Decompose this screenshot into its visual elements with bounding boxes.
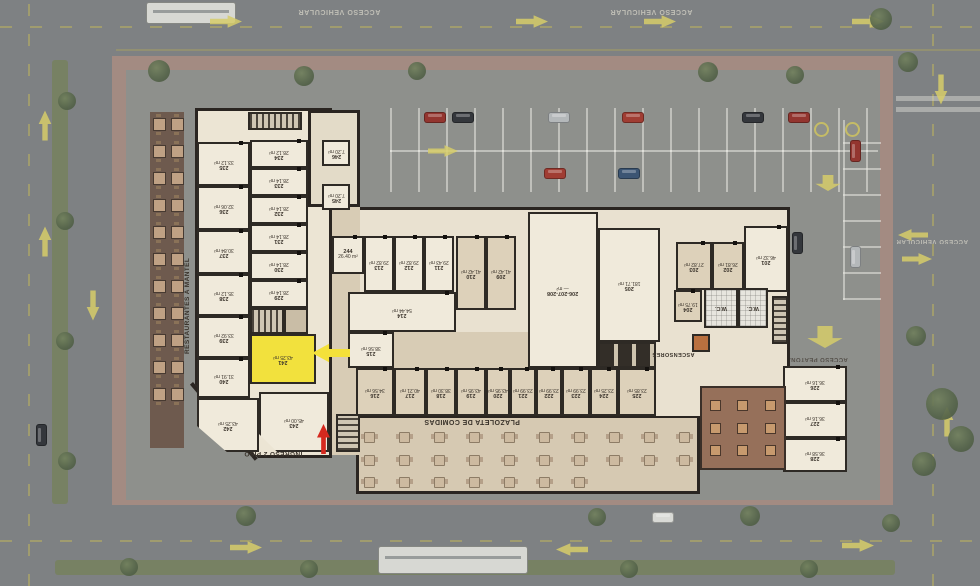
tree <box>800 560 818 578</box>
tree <box>898 52 918 72</box>
unit-227[interactable]: 22736.16 m² <box>783 402 847 438</box>
car <box>544 168 566 179</box>
food-court-table <box>539 455 550 466</box>
car <box>618 168 640 179</box>
unit-228[interactable]: 22836.58 m² <box>783 438 847 472</box>
deck-table <box>710 400 721 411</box>
site-plan: ACCESO VEHICULAR ACCESO VEHICULAR ACCESO… <box>0 0 980 586</box>
tree <box>58 92 76 110</box>
food-court-label: PLAZOLETA DE COMIDAS <box>424 418 520 425</box>
parking-sign-icon <box>845 122 860 137</box>
food-court-table <box>399 455 410 466</box>
unit-label: 205181.71 m² <box>618 279 641 291</box>
unit-221[interactable]: 22123.99 m² <box>510 368 536 416</box>
unit-label: 20419.75 m² <box>678 300 698 312</box>
restaurant-table <box>171 199 184 212</box>
restaurant-tables <box>150 112 185 407</box>
unit-223[interactable]: 22323.99 m² <box>562 368 590 416</box>
restaurant-table <box>171 334 184 347</box>
unit-236[interactable]: 23632.06 m² <box>197 186 250 230</box>
food-court-table <box>399 477 410 488</box>
unit-label: 21838.30 m² <box>431 386 451 398</box>
pedestrian-access-label: ACCESO PEATONAL <box>782 356 848 362</box>
unit-216[interactable]: 21634.56 m² <box>356 368 394 416</box>
unit-219[interactable]: 21943.95 m² <box>456 368 486 416</box>
restaurant-table <box>171 145 184 158</box>
unit-label: 23228.14 m² <box>269 204 289 216</box>
bus <box>378 546 528 574</box>
tree <box>906 326 926 346</box>
tree <box>926 388 958 420</box>
car <box>652 512 674 523</box>
unit-label: 21229.82 m² <box>399 258 419 270</box>
unit-241-highlighted[interactable]: 24143.25 m² <box>250 334 316 384</box>
unit-246[interactable]: 2467.20 m² <box>322 140 350 166</box>
deck-table <box>710 423 721 434</box>
restaurant-table <box>171 361 184 374</box>
tree <box>236 506 256 526</box>
unit-233[interactable]: 23328.14 m² <box>250 168 308 196</box>
unit-239[interactable]: 23933.92 m² <box>197 316 250 358</box>
unit-label: 23933.92 m² <box>214 331 234 343</box>
food-court-table <box>679 455 690 466</box>
unit-237[interactable]: 23730.84 m² <box>197 230 250 274</box>
unit-label: 22928.14 m² <box>269 288 289 300</box>
lane-divider <box>932 0 934 586</box>
road-right <box>893 0 980 586</box>
restaurant-table <box>153 388 166 401</box>
unit-225[interactable]: 22523.85 m² <box>618 368 656 416</box>
lane-divider <box>0 26 980 28</box>
tree <box>948 426 974 452</box>
food-court-table <box>434 455 445 466</box>
wc-room[interactable]: W.C. <box>704 288 738 328</box>
tree <box>408 62 426 80</box>
tree <box>56 212 74 230</box>
unit-213[interactable]: 21329.82 m² <box>364 236 394 292</box>
restaurant-table <box>153 334 166 347</box>
car <box>548 112 570 123</box>
unit-label: 23328.14 m² <box>269 176 289 188</box>
restaurant-table <box>153 307 166 320</box>
restaurant-table <box>171 307 184 320</box>
deck-table <box>765 400 776 411</box>
unit-label: 20327.82 m² <box>684 260 704 272</box>
unit-label: 21041.42 m² <box>461 267 481 279</box>
restaurants-label: RESTAURANTES A MANTEL <box>184 222 191 354</box>
deck-table <box>737 400 748 411</box>
tree <box>148 60 170 82</box>
deck-table <box>765 423 776 434</box>
car <box>792 232 803 254</box>
deck-table <box>737 445 748 456</box>
car <box>788 112 810 123</box>
unit-229[interactable]: 22928.14 m² <box>250 280 308 308</box>
deck-table <box>765 445 776 456</box>
unit-224[interactable]: 22423.25 m² <box>590 368 618 416</box>
tree <box>740 506 760 526</box>
car <box>850 140 861 162</box>
unit-label: 22836.58 m² <box>805 449 825 461</box>
restaurant-table <box>153 226 166 239</box>
lane-divider <box>0 540 980 542</box>
unit-214[interactable]: 21454.44 m² <box>348 292 456 332</box>
restaurant-table <box>153 280 166 293</box>
road-label: ACCESO VEHICULAR <box>298 8 380 15</box>
stairs <box>336 414 360 452</box>
unit-202[interactable]: 20226.81 m² <box>712 242 744 290</box>
unit-label: 24143.25 m² <box>273 353 293 365</box>
unit-label: 22123.99 m² <box>513 386 533 398</box>
unit-label: 23128.14 m² <box>269 232 289 244</box>
entrance-label: INGRESO 2 PISO <box>244 450 302 457</box>
food-court-table <box>364 455 375 466</box>
unit-label: 20226.81 m² <box>718 260 738 272</box>
food-court-table <box>469 432 480 443</box>
unit-238[interactable]: 23835.12 m² <box>197 274 250 316</box>
food-court-table <box>504 432 515 443</box>
unit-215[interactable]: 21538.56 m² <box>348 332 394 368</box>
tree <box>300 560 318 578</box>
tree <box>294 66 314 86</box>
food-court-table <box>504 455 515 466</box>
unit-230[interactable]: 23028.14 m² <box>250 252 308 280</box>
restaurant-table <box>171 172 184 185</box>
unit-label: 21329.82 m² <box>369 258 389 270</box>
unit-label: 21740.21 m² <box>400 386 420 398</box>
unit-243[interactable]: 24345.00 m² <box>259 392 329 452</box>
food-court-table <box>679 432 690 443</box>
unit-label: 23730.84 m² <box>214 246 234 258</box>
unit-label: 22323.99 m² <box>566 386 586 398</box>
food-court-table <box>644 432 655 443</box>
car <box>850 246 861 268</box>
unit-label: 22736.16 m² <box>805 414 825 426</box>
road-label: ACCESO VEHICULAR <box>610 8 692 15</box>
stairs <box>250 308 284 334</box>
tree <box>620 560 638 578</box>
tree <box>120 558 138 576</box>
unit-206-207-208[interactable]: 206-207-208— m² <box>528 212 598 368</box>
unit-label: 22636.16 m² <box>805 378 825 390</box>
service-room <box>284 308 308 334</box>
unit-201[interactable]: 20146.32 m² <box>744 226 788 292</box>
wc-room[interactable]: W.C. <box>738 288 768 328</box>
tree <box>698 62 718 82</box>
median-strip <box>52 60 68 504</box>
tree <box>786 66 804 84</box>
unit-label: 24031.91 m² <box>214 372 234 384</box>
unit-211[interactable]: 21129.43 m² <box>424 236 454 292</box>
unit-label: 2467.20 m² <box>328 147 345 159</box>
unit-232[interactable]: 23228.14 m² <box>250 196 308 224</box>
food-court-table <box>644 455 655 466</box>
deck-table <box>737 423 748 434</box>
unit-label: 20941.42 m² <box>491 267 511 279</box>
food-court-table <box>434 432 445 443</box>
elevator-block <box>598 342 656 368</box>
deck-table <box>710 445 721 456</box>
unit-217[interactable]: 21740.21 m² <box>394 368 426 416</box>
stairs <box>772 296 788 344</box>
elevator-lobby <box>692 334 710 352</box>
tree <box>882 514 900 532</box>
restaurant-table <box>153 199 166 212</box>
unit-label: 21129.43 m² <box>429 258 449 270</box>
unit-234[interactable]: 23428.12 m² <box>250 140 308 168</box>
car <box>452 112 474 123</box>
tree <box>870 8 892 30</box>
unit-label: 21538.56 m² <box>361 344 381 356</box>
unit-218[interactable]: 21838.30 m² <box>426 368 456 416</box>
lane-divider <box>28 0 30 586</box>
restaurant-table <box>153 145 166 158</box>
unit-label: 22043.95 m² <box>488 386 508 398</box>
elevators-label: ASCENSORES <box>652 351 695 357</box>
stairs <box>248 112 302 130</box>
unit-231[interactable]: 23128.14 m² <box>250 224 308 252</box>
unit-label: 23428.12 m² <box>269 148 289 160</box>
car <box>742 112 764 123</box>
lane-edge <box>116 49 980 51</box>
car <box>622 112 644 123</box>
unit-label: 23632.06 m² <box>214 202 234 214</box>
food-court-table <box>504 477 515 488</box>
restaurant-table <box>171 388 184 401</box>
tree <box>588 508 606 526</box>
unit-label: 23835.12 m² <box>214 289 234 301</box>
restaurant-table <box>153 361 166 374</box>
tree <box>58 452 76 470</box>
unit-226[interactable]: 22636.16 m² <box>783 366 847 402</box>
tree <box>912 452 936 476</box>
food-court-table <box>539 477 550 488</box>
food-court-table <box>539 432 550 443</box>
unit-245[interactable]: 2457.20 m² <box>322 184 350 210</box>
unit-label: 22423.25 m² <box>594 386 614 398</box>
unit-220[interactable]: 22043.95 m² <box>486 368 510 416</box>
parking-sign-icon <box>814 122 829 137</box>
unit-244[interactable]: 24426.40 m² <box>332 236 364 274</box>
food-court-tables <box>364 432 694 488</box>
unit-222[interactable]: 22223.99 m² <box>536 368 562 416</box>
unit-235[interactable]: 23533.12 m² <box>197 142 250 186</box>
restaurant-table <box>171 253 184 266</box>
unit-label: 24243.25 m² <box>218 419 238 431</box>
unit-205[interactable]: 205181.71 m² <box>598 228 660 342</box>
restaurant-table <box>171 118 184 131</box>
car <box>424 112 446 123</box>
food-court-table <box>574 477 585 488</box>
unit-label: 23028.14 m² <box>269 260 289 272</box>
food-court-table <box>609 455 620 466</box>
food-court-table <box>574 432 585 443</box>
restaurant-table <box>171 226 184 239</box>
food-court-table <box>434 477 445 488</box>
wc-label: W.C. <box>715 305 727 311</box>
restaurant-table <box>153 118 166 131</box>
unit-210[interactable]: 21041.42 m² <box>456 236 486 310</box>
food-court-table <box>574 455 585 466</box>
unit-label: 23533.12 m² <box>214 158 234 170</box>
wc-label: W.C. <box>747 305 759 311</box>
food-court-table <box>609 432 620 443</box>
unit-label: 20146.32 m² <box>756 253 776 265</box>
road-label: ACCESO VEHICULAR <box>896 238 968 244</box>
car <box>36 424 47 446</box>
food-court-table <box>399 432 410 443</box>
unit-203[interactable]: 20327.82 m² <box>676 242 712 290</box>
unit-label: 24345.00 m² <box>284 416 304 428</box>
unit-204[interactable]: 20419.75 m² <box>674 290 702 322</box>
food-court-table <box>364 477 375 488</box>
unit-label: 24426.40 m² <box>338 249 358 261</box>
unit-label: 22523.85 m² <box>627 386 647 398</box>
unit-label: 21634.56 m² <box>365 386 385 398</box>
unit-label: 2457.20 m² <box>328 191 345 203</box>
restaurant-table <box>153 172 166 185</box>
dining-deck <box>700 386 786 470</box>
tree <box>56 332 74 350</box>
unit-209[interactable]: 20941.42 m² <box>486 236 516 310</box>
food-court-table <box>469 477 480 488</box>
unit-label: 21943.95 m² <box>461 386 481 398</box>
restaurant-table <box>153 253 166 266</box>
restaurant-table <box>171 280 184 293</box>
parking-stalls <box>843 120 881 300</box>
food-court-table <box>364 432 375 443</box>
unit-240[interactable]: 24031.91 m² <box>197 358 250 398</box>
unit-label: 21454.44 m² <box>392 306 412 318</box>
unit-label: 206-207-208— m² <box>547 284 578 296</box>
unit-212[interactable]: 21229.82 m² <box>394 236 424 292</box>
unit-label: 22223.99 m² <box>539 386 559 398</box>
food-court-table <box>469 455 480 466</box>
